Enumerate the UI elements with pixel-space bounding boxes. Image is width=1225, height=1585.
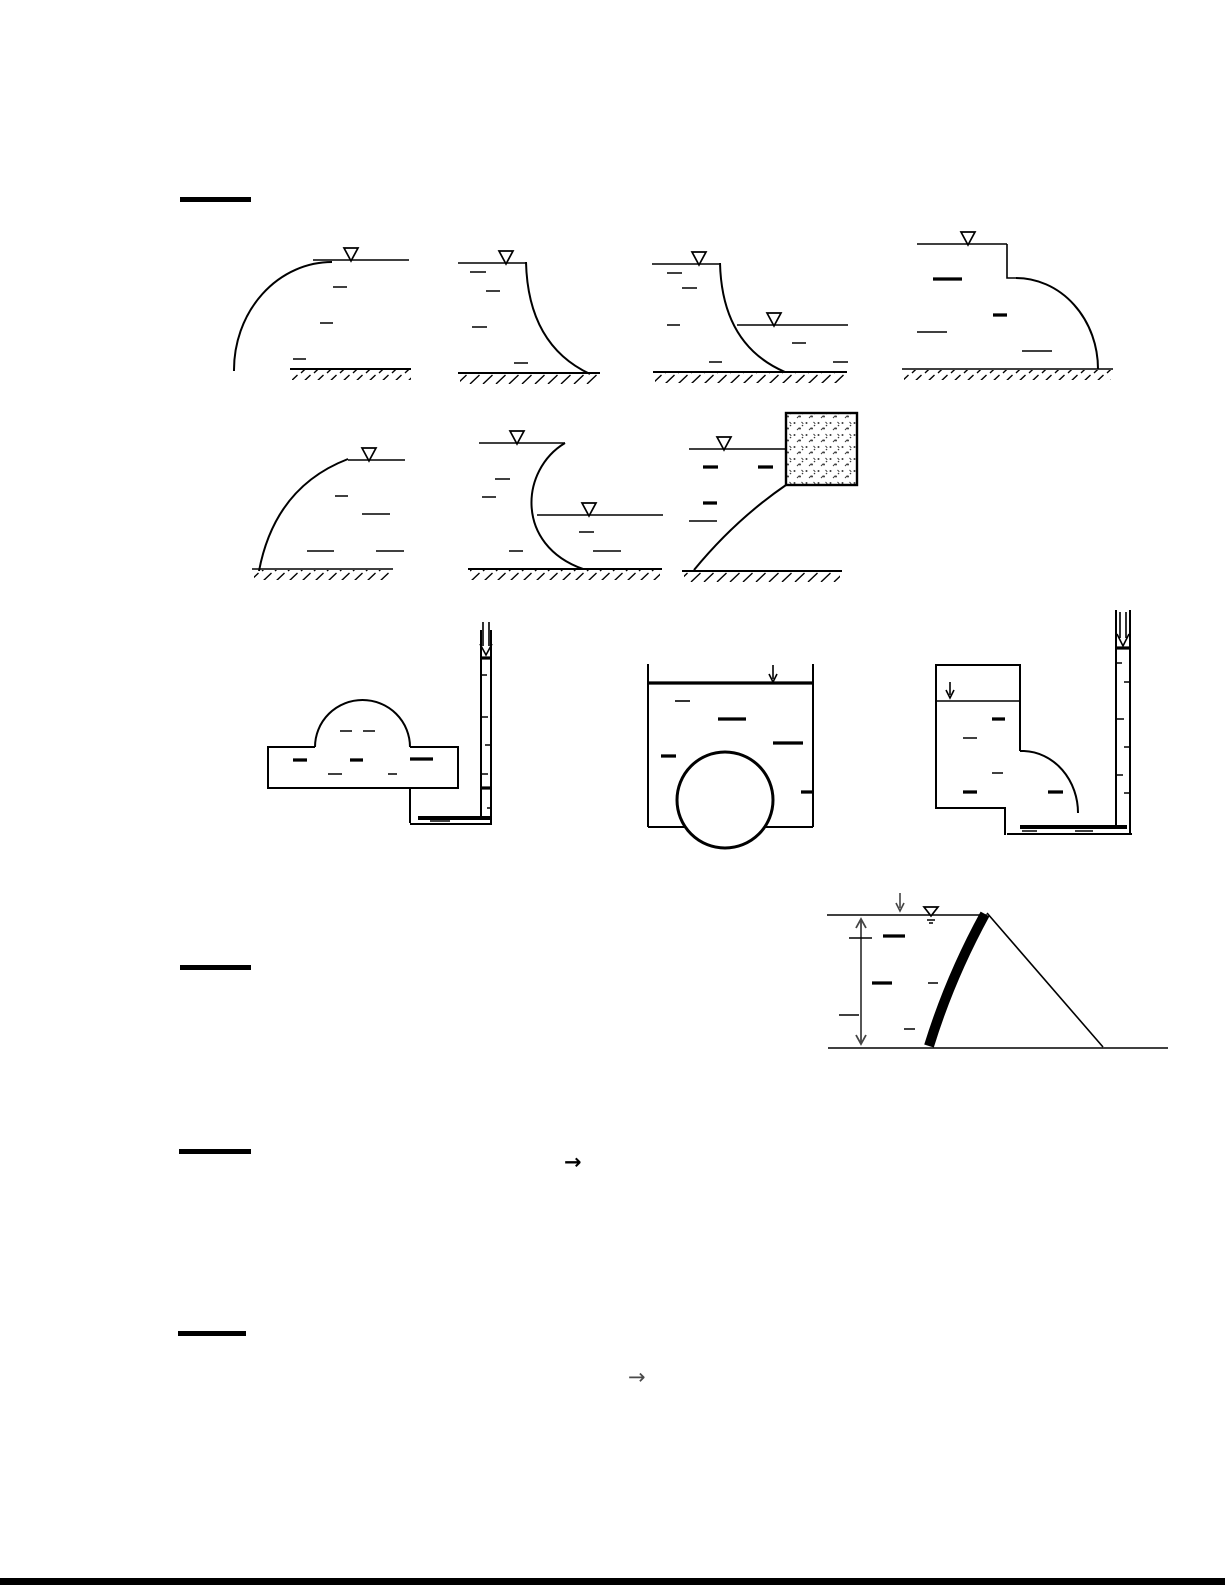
marker-hash-lines [927,920,935,923]
ground-hatch [655,373,845,383]
figure-tank-cylinder-plug [648,664,814,848]
down-arrow-icon [896,893,904,911]
dam-downstream-slope [987,913,1103,1047]
water-dashes [293,287,347,359]
ground-hatch [904,370,1111,380]
curved-surface [694,485,786,570]
water-surface-marker-icon [362,448,376,461]
curved-surface [259,459,348,571]
tank-outline [936,665,1020,835]
figure-canvas [0,0,1225,1585]
water-dashes-thick [703,467,773,503]
ground-hatch [292,370,411,380]
water-dashes [917,332,1052,351]
water-dashes [470,272,528,363]
down-arrow-icon [946,682,954,698]
water-dashes [667,273,848,362]
figure-convex-gate [902,232,1113,380]
water-surface-marker-icon-2 [582,503,596,516]
ground-hatch [470,570,660,580]
dam-upstream-face [929,914,985,1046]
water-dashes [963,738,1003,773]
figure-curved-gate-two-levels [652,252,848,383]
water-dashes-thick [963,719,1063,792]
down-arrow-icon [769,665,777,682]
retained-block [786,413,857,485]
curved-surface [526,262,590,374]
quarter-gate [1020,751,1078,813]
water-dashes-thick [661,719,814,792]
down-arrow-icon-2 [1117,612,1129,646]
document-page: → → [0,0,1225,1585]
water-surface-marker-icon [344,248,358,261]
figure-convex-gate-water-right [252,448,405,580]
figure-s-curve-two-levels [468,431,663,580]
water-surface-marker-icon [510,431,524,444]
water-surface-marker-icon-2 [767,313,781,326]
figure-curved-gate-2 [458,251,600,384]
tank-outline [268,747,458,788]
curved-surface [531,443,583,569]
water-dashes [328,731,397,774]
water-surface-marker-icon [499,251,513,264]
figure-curve-with-block [682,413,857,582]
cylinder-plug [677,752,773,848]
page-footer-rule [0,1578,1225,1585]
figure-dome-tank-manometer [268,622,492,824]
figure-arch-dam-profile [827,893,1168,1048]
ground-hatch [684,572,840,582]
water-surface-marker-icon [717,437,731,450]
ground-hatch [254,570,391,580]
water-surface-marker-icon [692,252,706,265]
curved-surface [234,262,332,371]
dome [315,700,410,747]
water-dashes-thick [872,936,905,983]
figure-curved-gate-1 [234,248,411,380]
wall-step [1007,244,1016,278]
manometer-ticks [1116,663,1130,793]
water-dashes-thick [293,759,433,760]
water-surface-marker-icon [961,232,975,245]
figure-tank-quarter-gate-manometer [936,610,1132,835]
curved-surface [1016,278,1098,369]
water-dashes [307,496,404,551]
ground-hatch [460,374,598,384]
water-dashes-thick [933,279,1007,315]
